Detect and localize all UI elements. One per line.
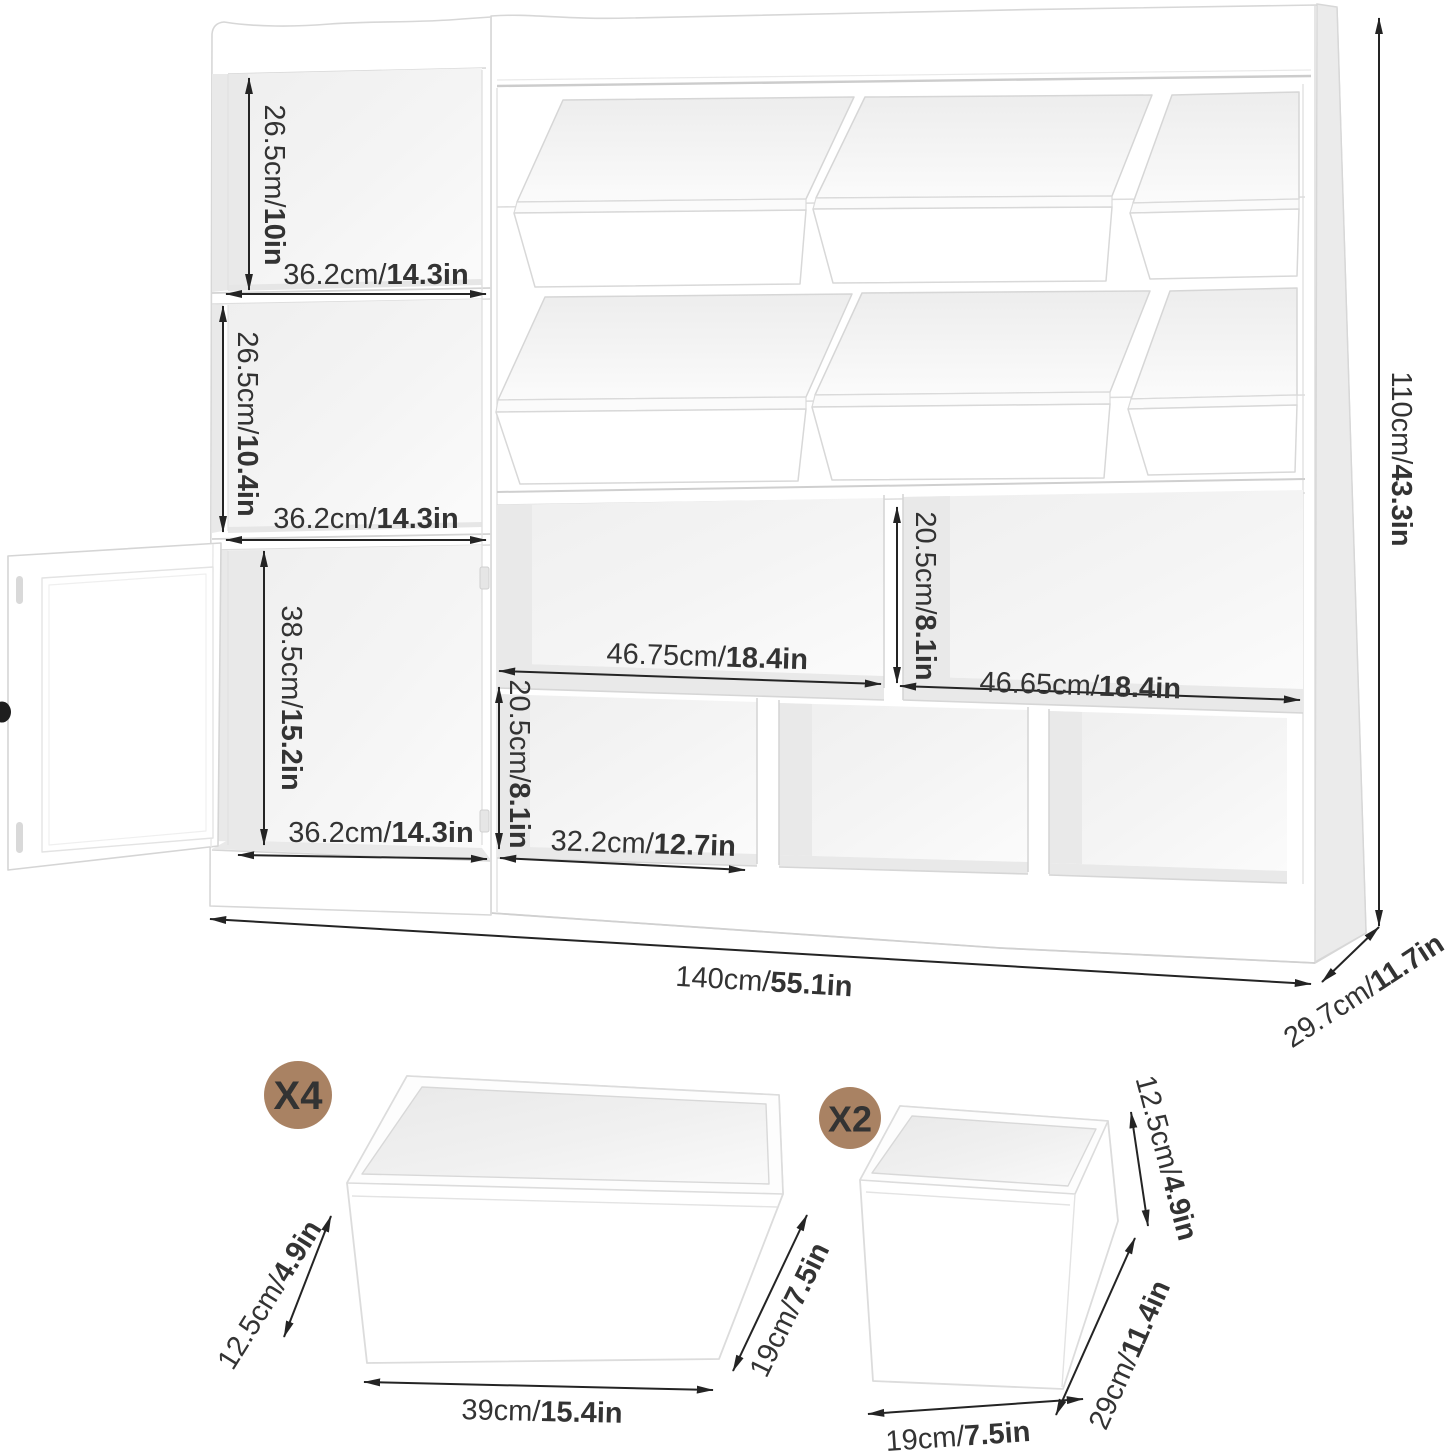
svg-text:36.2cm/14.3in: 36.2cm/14.3in [288, 817, 473, 849]
svg-text:110cm/43.3in: 110cm/43.3in [1385, 371, 1417, 546]
svg-text:39cm/15.4in: 39cm/15.4in [461, 1394, 623, 1430]
svg-text:36.2cm/14.3in: 36.2cm/14.3in [283, 259, 468, 291]
svg-text:X4: X4 [274, 1074, 324, 1118]
svg-text:140cm/55.1in: 140cm/55.1in [675, 961, 854, 1003]
svg-text:20.5cm/8.1in: 20.5cm/8.1in [909, 511, 941, 680]
svg-text:36.2cm/14.3in: 36.2cm/14.3in [273, 503, 458, 535]
svg-text:32.2cm/12.7in: 32.2cm/12.7in [550, 825, 736, 863]
svg-text:X2: X2 [828, 1099, 872, 1140]
svg-text:20.5cm/8.1in: 20.5cm/8.1in [503, 679, 535, 848]
svg-text:29cm/11.4in: 29cm/11.4in [1083, 1276, 1177, 1435]
svg-text:12.5cm/4.9in: 12.5cm/4.9in [1129, 1072, 1204, 1244]
svg-text:46.75cm/18.4in: 46.75cm/18.4in [606, 638, 808, 676]
svg-text:38.5cm/15.2in: 38.5cm/15.2in [275, 605, 307, 790]
svg-text:12.5cm/4.9in: 12.5cm/4.9in [212, 1215, 329, 1376]
svg-text:19cm/7.5in: 19cm/7.5in [885, 1416, 1032, 1452]
svg-text:26.5cm/10.4in: 26.5cm/10.4in [231, 331, 263, 516]
svg-text:26.5cm/10in: 26.5cm/10in [258, 104, 290, 265]
